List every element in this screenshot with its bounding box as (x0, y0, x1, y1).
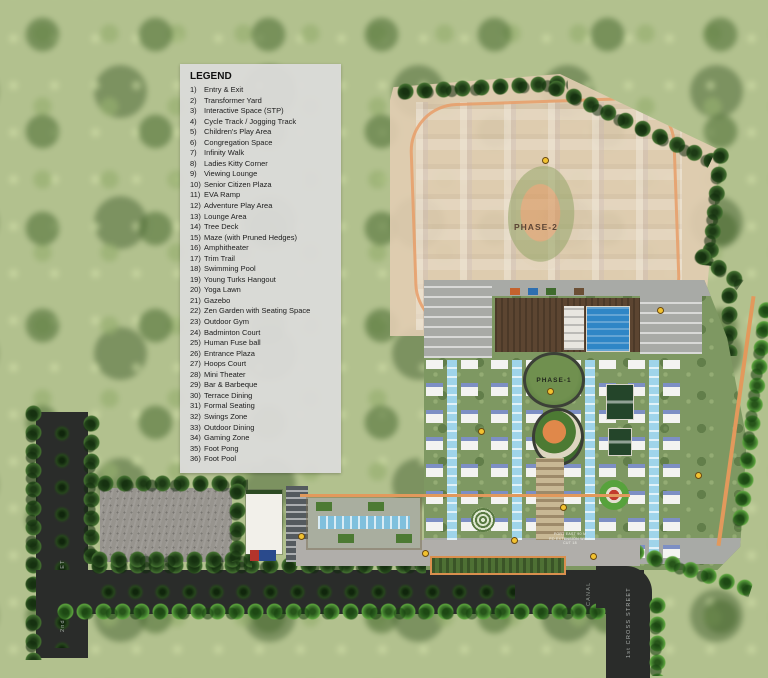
legend-item: 13)Lounge Area (190, 212, 333, 223)
road-annotation-line: CUT 18 (538, 541, 602, 546)
legend-item: 35)Foot Pong (190, 444, 333, 455)
lap-pool (318, 516, 410, 529)
boundary-hedge (430, 556, 566, 575)
phase-1-lawn-oval: PHASE-1 (523, 352, 585, 408)
cabana (528, 288, 538, 295)
legend-list: 1)Entry & Exit2)Transformer Yard3)Intera… (190, 85, 333, 465)
legend-item: 31)Formal Seating (190, 401, 333, 412)
legend-item: 11)EVA Ramp (190, 190, 333, 201)
legend-item: 32)Swings Zone (190, 412, 333, 423)
road-median-palms (95, 584, 515, 600)
tower-column (426, 360, 478, 558)
boundary-track (300, 494, 630, 497)
legend-item: 8)Ladies Kitty Corner (190, 159, 333, 170)
numbered-marker (422, 550, 429, 557)
tree-column (648, 596, 668, 676)
legend-item: 12)Adventure Play Area (190, 201, 333, 212)
legend-title: LEGEND (190, 71, 333, 82)
legend-item: 20)Yoga Lawn (190, 285, 333, 296)
road-curve (596, 566, 652, 608)
play-court-patch (250, 550, 276, 561)
legend-item: 28)Mini Theater (190, 370, 333, 381)
legend-item: 6)Congregation Space (190, 138, 333, 149)
hedge-column (228, 482, 246, 562)
tower-column (628, 360, 680, 558)
phase-1-area: PHASE-1 (424, 280, 750, 570)
numbered-marker (590, 553, 597, 560)
internal-road (640, 294, 702, 354)
maze-circle (471, 508, 495, 532)
legend-item: 18)Swimming Pool (190, 264, 333, 275)
legend-item: 7)Infinity Walk (190, 148, 333, 159)
cabana (574, 288, 584, 295)
badminton-court (608, 428, 632, 456)
phase-2-label: PHASE-2 (514, 222, 558, 232)
legend-item: 15)Maze (with Pruned Hedges) (190, 233, 333, 244)
roof-garden (338, 534, 354, 543)
phase-2-central-garden (508, 166, 580, 270)
numbered-marker (478, 428, 485, 435)
legend-item: 33)Outdoor Dining (190, 423, 333, 434)
legend-item: 22)Zen Garden with Seating Space (190, 306, 333, 317)
cabana (546, 288, 556, 295)
phase-1-label: PHASE-1 (536, 377, 571, 384)
roof-garden (396, 534, 412, 543)
legend-item: 3)Interactive Space (STP) (190, 106, 333, 117)
site-plan: PHASE-2 PHASE-1 (0, 0, 768, 678)
tree-column (24, 404, 43, 660)
legend-item: 9)Viewing Lounge (190, 169, 333, 180)
legend-item: 19)Young Turks Hangout (190, 275, 333, 286)
numbered-marker (511, 537, 518, 544)
legend-item: 30)Terrace Dining (190, 391, 333, 402)
legend-item: 17)Trim Trail (190, 254, 333, 265)
tree-row (56, 602, 636, 622)
numbered-marker (547, 388, 554, 395)
linear-clubhouse (308, 498, 420, 548)
legend-item: 16)Amphitheater (190, 243, 333, 254)
road-annotation: PORT EAST 90 M RD EXTENSION WALL CUT 18 (538, 532, 602, 546)
legend-item: 29)Bar & Barbeque (190, 380, 333, 391)
numbered-marker (542, 157, 549, 164)
legend-item: 5)Children's Play Area (190, 127, 333, 138)
legend-item: 1)Entry & Exit (190, 85, 333, 96)
legend-item: 34)Gaming Zone (190, 433, 333, 444)
numbered-marker (298, 533, 305, 540)
tree-row (96, 474, 248, 492)
canal-label: CANAL (586, 572, 592, 606)
numbered-marker (695, 472, 702, 479)
legend-item: 36)Foot Pool (190, 454, 333, 465)
legend-item: 23)Outdoor Gym (190, 317, 333, 328)
badminton-court (606, 384, 634, 420)
cabana (510, 288, 520, 295)
pool-lounger-deck (564, 306, 584, 350)
numbered-marker (560, 504, 567, 511)
legend-item: 14)Tree Deck (190, 222, 333, 233)
legend-item: 27)Hoops Court (190, 359, 333, 370)
legend-item: 26)Entrance Plaza (190, 349, 333, 360)
swimming-pool (586, 306, 630, 352)
legend-item: 25)Human Fuse ball (190, 338, 333, 349)
street-label-right: 1st CROSS STREET (626, 598, 632, 658)
numbered-marker (657, 307, 664, 314)
legend-item: 2)Transformer Yard (190, 96, 333, 107)
internal-road (424, 280, 492, 358)
legend-item: 21)Gazebo (190, 296, 333, 307)
legend-panel: LEGEND 1)Entry & Exit2)Transformer Yard3… (180, 64, 341, 473)
legend-item: 10)Senior Citizen Plaza (190, 180, 333, 191)
clubhouse-building (246, 490, 282, 554)
roof-garden (368, 502, 384, 511)
legend-item: 24)Badminton Court (190, 328, 333, 339)
legend-item: 4)Cycle Track / Jogging Track (190, 117, 333, 128)
roof-garden (316, 502, 332, 511)
